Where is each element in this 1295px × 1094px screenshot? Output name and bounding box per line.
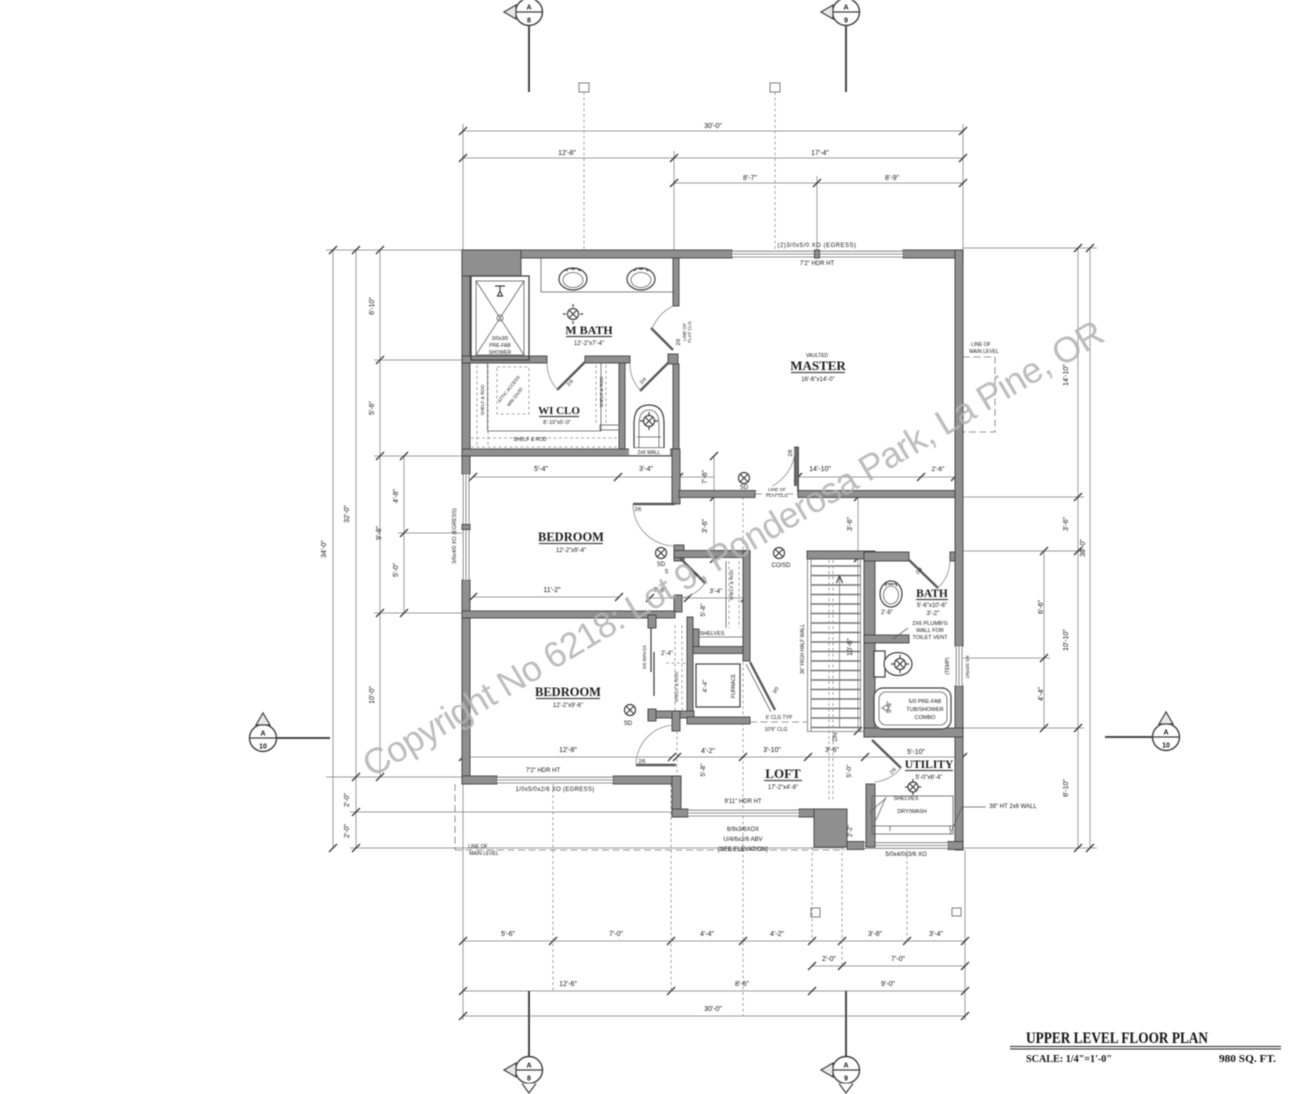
svg-text:U/4/6x2/6 ABV: U/4/6x2/6 ABV — [723, 837, 762, 843]
svg-text:SHELVES: SHELVES — [894, 796, 919, 802]
svg-text:MAIN LEVEL: MAIN LEVEL — [969, 349, 999, 355]
svg-text:LINE OF: LINE OF — [971, 342, 990, 348]
svg-text:3'-6": 3'-6" — [1063, 517, 1070, 531]
svg-text:3'-10": 3'-10" — [763, 747, 781, 754]
svg-text:PRE-FAB: PRE-FAB — [489, 343, 511, 349]
svg-text:38" HT 2x6 WALL: 38" HT 2x6 WALL — [989, 804, 1037, 810]
svg-text:16'-6"x14'-0": 16'-6"x14'-0" — [801, 377, 835, 383]
svg-text:2'-6": 2'-6" — [932, 466, 946, 473]
svg-text:3'-4": 3'-4" — [929, 931, 943, 938]
svg-text:32'-0": 32'-0" — [344, 505, 351, 523]
svg-text:LOFT: LOFT — [765, 766, 801, 781]
svg-text:SHELF & ROD: SHELF & ROD — [513, 437, 547, 443]
svg-text:BEDROOM: BEDROOM — [538, 530, 604, 544]
svg-text:9'-8": 9'-8" — [376, 526, 383, 540]
svg-text:2/6: 2/6 — [635, 507, 642, 513]
svg-text:A: A — [526, 5, 531, 12]
svg-text:7'-0": 7'-0" — [891, 956, 905, 963]
svg-text:12'-2"x9'-6": 12'-2"x9'-6" — [553, 703, 583, 709]
svg-text:UPPER LEVEL FLOOR PLAN: UPPER LEVEL FLOOR PLAN — [1026, 1030, 1208, 1047]
svg-text:9'-0": 9'-0" — [881, 981, 895, 988]
svg-text:10: 10 — [259, 744, 267, 751]
svg-text:5'-10": 5'-10" — [907, 749, 925, 756]
svg-text:7'-6": 7'-6" — [702, 470, 709, 484]
svg-text:2'-8": 2'-8" — [881, 610, 893, 616]
svg-text:12'-8": 12'-8" — [559, 747, 577, 754]
svg-text:6/9x3/6XOX: 6/9x3/6XOX — [727, 827, 759, 833]
svg-text:5'-8": 5'-8" — [700, 763, 707, 777]
svg-text:3'-6": 3'-6" — [825, 747, 839, 754]
svg-text:12'-6": 12'-6" — [559, 981, 577, 988]
svg-text:SCALE: 1/4"=1'-0": SCALE: 1/4"=1'-0" — [1026, 1054, 1112, 1065]
svg-text:12'-2"x7'-4": 12'-2"x7'-4" — [574, 341, 604, 347]
svg-text:(TEMP): (TEMP) — [945, 657, 951, 675]
svg-text:BATH: BATH — [916, 588, 948, 600]
svg-text:5/0x4/0x3/6 XO: 5/0x4/0x3/6 XO — [885, 852, 927, 858]
svg-text:7'-0": 7'-0" — [609, 931, 623, 938]
svg-text:12'-8": 12'-8" — [558, 150, 576, 157]
svg-text:2'-2": 2'-2" — [848, 825, 854, 837]
svg-text:FLAT CLG: FLAT CLG — [687, 321, 692, 343]
svg-text:3'-6": 3'-6" — [702, 519, 709, 533]
svg-text:SHELF & ROD: SHELF & ROD — [480, 384, 485, 415]
svg-text:A: A — [843, 1063, 848, 1070]
svg-text:M BATH: M BATH — [565, 323, 613, 337]
svg-text:6' CLG TYP: 6' CLG TYP — [766, 715, 793, 721]
svg-text:MASTER: MASTER — [790, 358, 846, 373]
svg-text:10'-0": 10'-0" — [369, 686, 376, 704]
svg-text:30'-0": 30'-0" — [704, 123, 722, 130]
svg-text:FURNACE: FURNACE — [731, 673, 737, 698]
svg-text:8'-6": 8'-6" — [735, 981, 749, 988]
svg-text:9: 9 — [844, 1076, 848, 1083]
svg-text:3'-4": 3'-4" — [710, 588, 724, 595]
svg-text:12'-2"x9'-4": 12'-2"x9'-4" — [556, 548, 586, 554]
svg-text:10'-10": 10'-10" — [1063, 629, 1070, 651]
svg-text:LINE OF: LINE OF — [468, 844, 487, 850]
svg-text:4'-4": 4'-4" — [702, 679, 709, 693]
svg-text:COMBO: COMBO — [915, 715, 937, 721]
svg-text:8'-10"x5'-0": 8'-10"x5'-0" — [543, 420, 571, 426]
svg-text:DRY/WASH: DRY/WASH — [897, 809, 926, 815]
svg-text:4'-4": 4'-4" — [700, 931, 714, 938]
svg-text:SHOWER: SHOWER — [489, 350, 512, 356]
svg-text:30'-0": 30'-0" — [1080, 539, 1087, 557]
svg-text:SD: SD — [624, 721, 633, 727]
svg-text:3/0x4/0 XO (EGRESS): 3/0x4/0 XO (EGRESS) — [452, 508, 458, 564]
svg-text:TOILET VENT: TOILET VENT — [912, 635, 948, 641]
svg-text:WI CLO: WI CLO — [538, 405, 580, 417]
svg-text:2X6 PLUMB'G: 2X6 PLUMB'G — [912, 621, 948, 627]
svg-text:4'-2": 4'-2" — [770, 931, 784, 938]
svg-text:(2)3/0x5/0 XO (EGRESS): (2)3/0x5/0 XO (EGRESS) — [777, 243, 856, 249]
svg-text:LINE OF: LINE OF — [768, 487, 786, 492]
svg-text:5'-8": 5'-8" — [700, 603, 707, 617]
svg-text:3'-2": 3'-2" — [927, 610, 941, 617]
svg-text:4'-4": 4'-4" — [1038, 687, 1045, 701]
svg-text:9'11" HDR HT: 9'11" HDR HT — [724, 799, 762, 805]
svg-text:2'-4": 2'-4" — [661, 651, 673, 657]
svg-text:5'-4": 5'-4" — [534, 466, 548, 473]
svg-text:DN: DN — [833, 733, 839, 742]
svg-text:SHELVES: SHELVES — [700, 631, 725, 637]
svg-text:8: 8 — [527, 18, 531, 25]
svg-text:3/0x3/0: 3/0x3/0 — [492, 336, 509, 342]
svg-text:5/0 BIPASS: 5/0 BIPASS — [642, 645, 647, 669]
svg-text:5'-6": 5'-6" — [501, 931, 515, 938]
svg-text:A: A — [526, 1063, 531, 1070]
svg-text:UTILITY: UTILITY — [905, 759, 954, 771]
svg-text:6'-10": 6'-10" — [369, 297, 376, 315]
svg-text:5'-0"x6'-4": 5'-0"x6'-4" — [916, 775, 943, 781]
svg-text:2/8: 2/8 — [788, 449, 794, 456]
svg-text:(SEE ELEVATION): (SEE ELEVATION) — [718, 847, 768, 853]
svg-text:980 SQ. FT.: 980 SQ. FT. — [1219, 1054, 1276, 1065]
svg-text:30'-0": 30'-0" — [704, 1006, 722, 1013]
svg-text:SHELF & ROD: SHELF & ROD — [599, 376, 604, 407]
svg-text:TUB/SHOWER: TUB/SHOWER — [906, 707, 943, 713]
svg-text:A: A — [260, 731, 265, 738]
svg-text:WALL FOR: WALL FOR — [916, 628, 944, 634]
svg-text:5'-6": 5'-6" — [369, 401, 376, 415]
svg-text:5'-8": 5'-8" — [887, 701, 893, 713]
svg-text:10: 10 — [1162, 743, 1170, 750]
svg-text:6'-6": 6'-6" — [1038, 600, 1045, 614]
svg-text:17'-4": 17'-4" — [811, 150, 829, 157]
svg-text:3'-4": 3'-4" — [639, 466, 653, 473]
svg-text:36" HIGH HALF WALL: 36" HIGH HALF WALL — [800, 624, 806, 674]
svg-text:5'-0": 5'-0" — [846, 764, 853, 778]
svg-text:A: A — [1163, 730, 1168, 737]
svg-text:SHELF & ROD: SHELF & ROD — [674, 671, 679, 702]
svg-text:8'-7": 8'-7" — [743, 175, 757, 182]
svg-text:2'-0": 2'-0" — [344, 824, 351, 838]
svg-text:3'-6": 3'-6" — [847, 517, 854, 531]
svg-text:17'-2"x4'-8": 17'-2"x4'-8" — [768, 785, 798, 791]
svg-text:3'-8": 3'-8" — [868, 931, 882, 938]
svg-text:2x6 WALL: 2x6 WALL — [638, 450, 661, 456]
svg-text:5/0 PRE-FAB: 5/0 PRE-FAB — [909, 699, 942, 705]
svg-text:9: 9 — [844, 18, 848, 25]
svg-text:8: 8 — [527, 1076, 531, 1083]
svg-text:2'-0": 2'-0" — [822, 956, 836, 963]
svg-text:2'-0": 2'-0" — [344, 793, 351, 807]
svg-text:8'-9": 8'-9" — [885, 175, 899, 182]
svg-text:7'2" HDR HT: 7'2" HDR HT — [800, 261, 835, 267]
svg-text:10'9" CLG: 10'9" CLG — [765, 727, 788, 733]
svg-text:2/6: 2/6 — [639, 759, 646, 765]
svg-text:10'-6": 10'-6" — [847, 638, 854, 656]
svg-text:BEDROOM: BEDROOM — [535, 685, 601, 699]
svg-text:SD: SD — [740, 485, 749, 491]
svg-text:6'-10": 6'-10" — [1063, 779, 1070, 797]
svg-text:11'-2": 11'-2" — [543, 587, 561, 594]
svg-text:CO/SD: CO/SD — [771, 563, 791, 569]
svg-text:A: A — [843, 5, 848, 12]
svg-text:MAIN LEVEL: MAIN LEVEL — [469, 851, 499, 857]
svg-text:4'-2": 4'-2" — [701, 748, 715, 755]
svg-text:7'2" HDR HT: 7'2" HDR HT — [526, 768, 561, 774]
svg-text:2/6x3/0 SH: 2/6x3/0 SH — [965, 656, 970, 679]
svg-text:34'-0": 34'-0" — [321, 540, 328, 558]
svg-text:4'-8": 4'-8" — [393, 489, 400, 503]
svg-text:1/0x5/0x2/6 XO (EGRESS): 1/0x5/0x2/6 XO (EGRESS) — [516, 787, 595, 793]
svg-text:5'-0": 5'-0" — [393, 563, 400, 577]
svg-text:5'-6"x10'-6": 5'-6"x10'-6" — [917, 603, 947, 609]
